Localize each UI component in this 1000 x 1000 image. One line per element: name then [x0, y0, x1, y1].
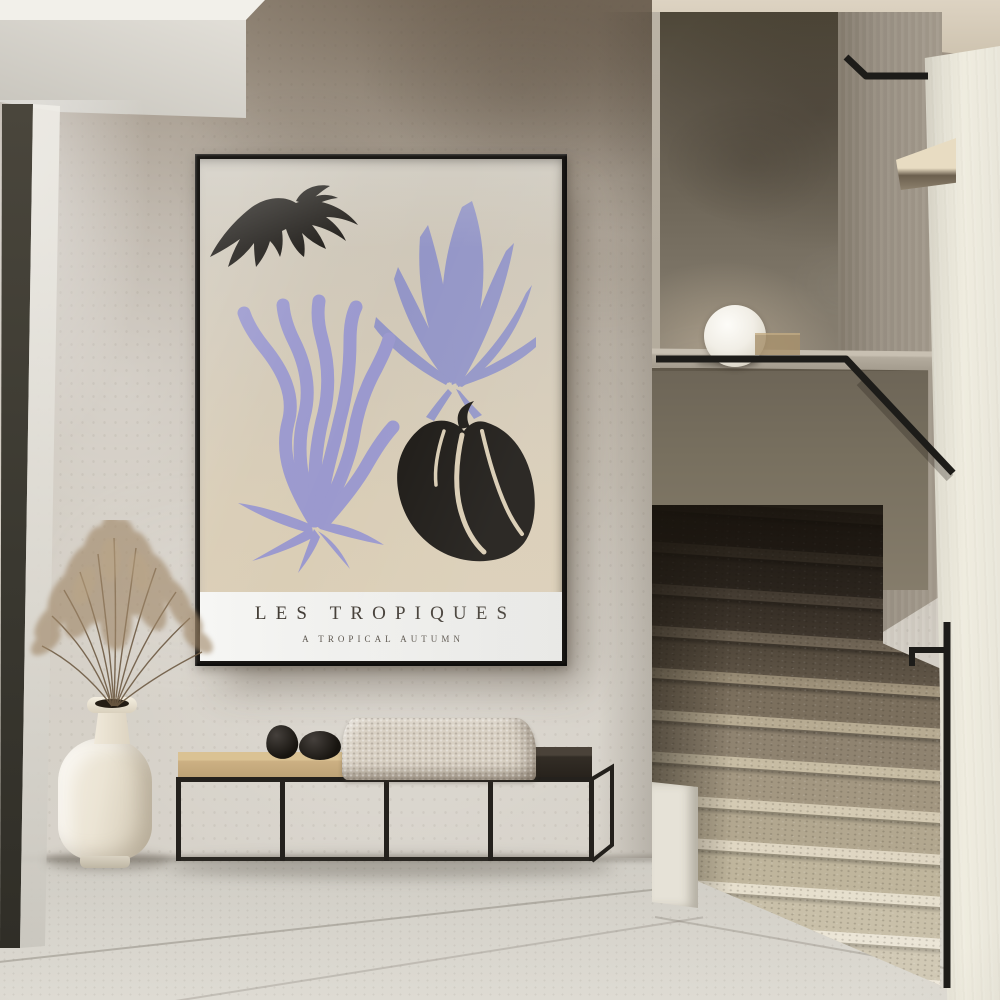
bench-leg: [280, 777, 285, 861]
poster: LES TROPIQUES A TROPICAL AUTUMN: [200, 159, 562, 661]
main-handrail: [656, 359, 953, 473]
bench-leg: [176, 777, 181, 861]
handrail: [652, 12, 1000, 1000]
knit-blanket: [342, 718, 536, 780]
bench-side-frame: [586, 758, 620, 864]
black-stone: [299, 731, 341, 760]
upper-handrail: [846, 57, 928, 76]
interior-photo: LES TROPIQUES A TROPICAL AUTUMN: [0, 0, 1000, 1000]
bench-leg: [488, 777, 493, 861]
pampas-plumes: [26, 520, 217, 660]
pampas-grass: [18, 520, 218, 725]
handrail-shadow: [860, 382, 950, 478]
railing-bracket: [912, 650, 947, 666]
poster-frame: LES TROPIQUES A TROPICAL AUTUMN: [195, 154, 567, 666]
stairwell-opening-shadow: [598, 12, 652, 860]
stairwell: [652, 12, 1000, 1000]
glass-reflection: [200, 159, 562, 661]
vase-foot: [80, 856, 130, 868]
bench-leg: [384, 777, 389, 861]
vase: [58, 738, 152, 860]
